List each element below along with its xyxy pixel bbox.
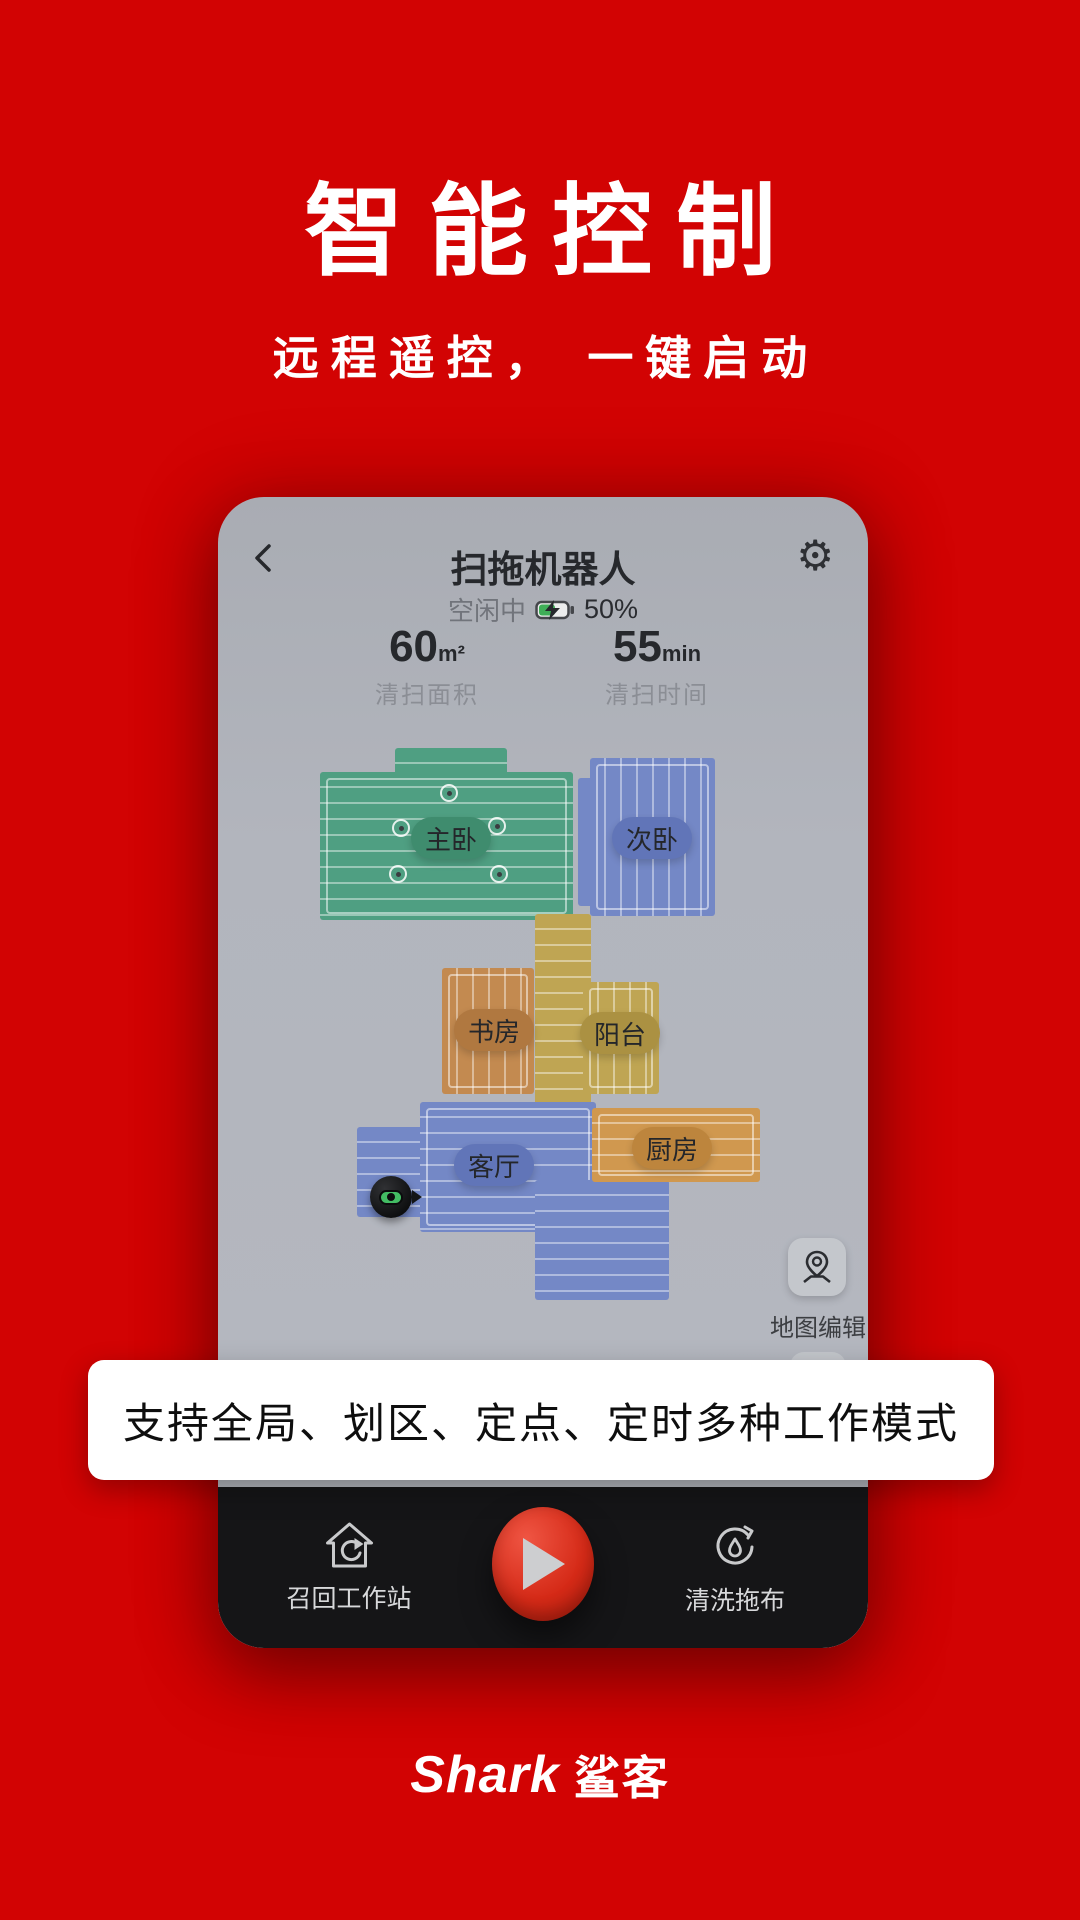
brand-name-cn: 鲨客	[574, 1742, 670, 1808]
room-keting[interactable]	[535, 1180, 669, 1300]
map-obstacle	[488, 817, 506, 835]
stat-clean-time: 55min 清扫时间	[605, 625, 709, 710]
battery-percent: 50%	[584, 594, 638, 625]
stat-unit: min	[662, 641, 701, 666]
battery-icon	[535, 599, 575, 621]
status-text: 空闲中	[448, 591, 526, 628]
recall-station-icon	[286, 1517, 411, 1573]
robot-eye	[379, 1190, 403, 1205]
page-subtitle: 远程遥控， 一键启动	[0, 322, 1080, 388]
stat-value: 55	[613, 622, 662, 671]
room-label-shufang: 书房	[454, 1009, 534, 1051]
page-title: 智能控制	[0, 150, 1080, 295]
room-label-zhuwo: 主卧	[411, 817, 491, 859]
play-icon	[519, 1536, 567, 1592]
room-label-yangtai: 阳台	[580, 1012, 660, 1054]
device-status-row: 空闲中 50%	[218, 591, 868, 628]
stat-label: 清扫面积	[375, 675, 479, 710]
control-bar: 召回工作站 清洗拖布	[218, 1487, 868, 1648]
settings-button[interactable]: ⚙	[796, 535, 834, 577]
recall-station-button[interactable]: 召回工作站	[286, 1517, 411, 1615]
brand-name-en: Shark	[410, 1745, 560, 1805]
map-pin-icon	[797, 1247, 837, 1287]
map-obstacle	[490, 865, 508, 883]
stat-unit: m²	[438, 641, 465, 666]
map-obstacle	[440, 784, 458, 802]
robot-direction-pointer	[412, 1190, 422, 1204]
device-title: 扫拖机器人	[218, 539, 868, 593]
wash-mop-icon	[685, 1519, 785, 1575]
wash-mop-button[interactable]: 清洗拖布	[685, 1519, 785, 1617]
room-label-chufang: 厨房	[632, 1127, 712, 1169]
brand-logo: Shark 鲨客	[0, 1742, 1080, 1808]
room-label-keting: 客厅	[454, 1144, 534, 1186]
feature-banner: 支持全局、划区、定点、定时多种工作模式	[88, 1360, 994, 1480]
room-label-ciwo: 次卧	[612, 817, 692, 859]
stat-label: 清扫时间	[605, 675, 709, 710]
gear-icon: ⚙	[796, 532, 834, 579]
stat-value: 60	[389, 622, 438, 671]
robot-icon	[370, 1176, 412, 1218]
promo-page: { "colors": { "background": "#d20303", "…	[0, 0, 1080, 1920]
map-edit-label: 地图编辑	[770, 1308, 866, 1343]
wash-mop-label: 清洗拖布	[685, 1581, 785, 1617]
map-obstacle	[389, 865, 407, 883]
start-cleaning-button[interactable]	[492, 1507, 594, 1621]
stat-clean-area: 60m² 清扫面积	[375, 625, 479, 710]
map-edit-button[interactable]	[788, 1238, 846, 1296]
recall-station-label: 召回工作站	[286, 1579, 411, 1615]
map-obstacle	[392, 819, 410, 837]
